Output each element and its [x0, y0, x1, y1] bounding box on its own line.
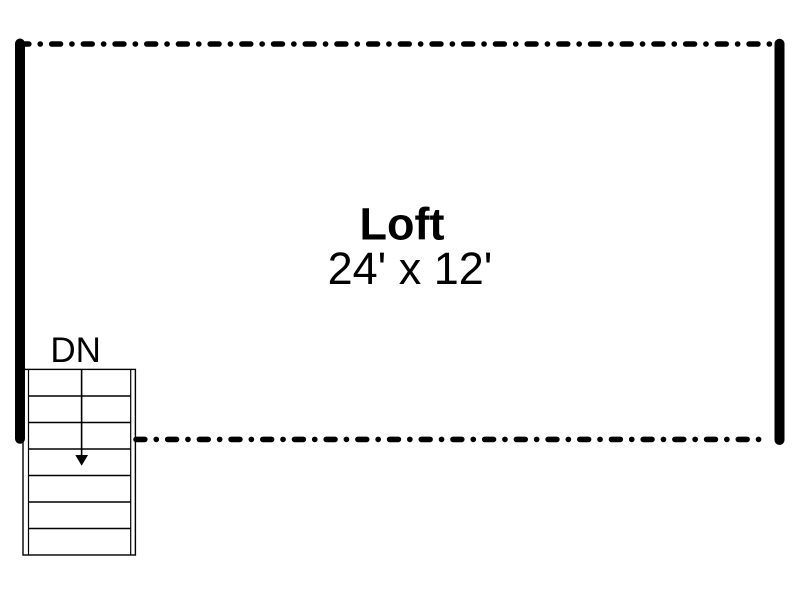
svg-text:24' x 12': 24' x 12' [328, 243, 493, 294]
svg-text:Loft: Loft [360, 199, 445, 250]
svg-text:DN: DN [50, 331, 101, 370]
